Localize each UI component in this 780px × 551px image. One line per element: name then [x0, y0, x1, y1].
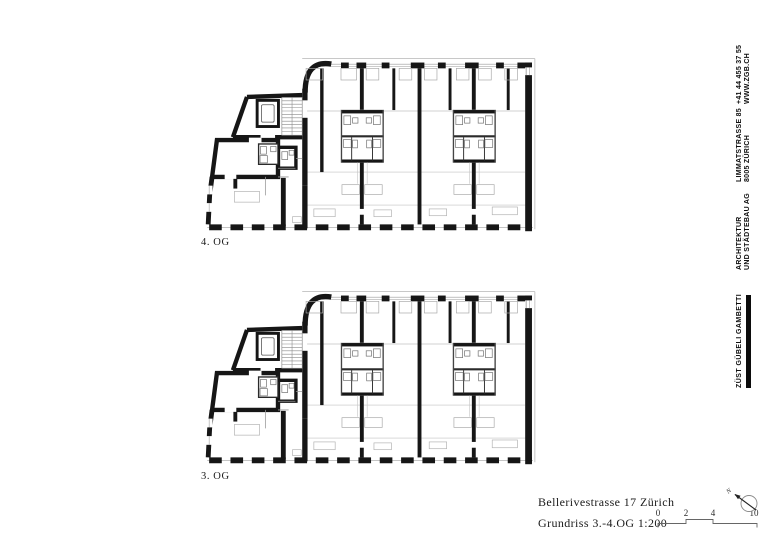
scale-tick-0: 0	[656, 508, 661, 518]
floor-plan-4og	[200, 48, 545, 238]
firm-logo: ZÜST GÜBELI GAMBETTI	[736, 293, 751, 388]
firm-phone: +41 44 455 37 55	[736, 24, 744, 104]
firm-address: LIMMATSTRASSE 85 8005 ZÜRICH	[736, 115, 753, 182]
firm-website: WWW.ZGB.CH	[744, 24, 752, 104]
scale-bar-line	[658, 520, 757, 528]
logo-underline	[746, 295, 751, 388]
firm-logo-name: ZÜST GÜBELI GAMBETTI	[736, 293, 744, 388]
plan-label-4og: 4. OG	[201, 237, 230, 248]
north-label: N	[724, 487, 733, 496]
firm-contact: +41 44 455 37 55 WWW.ZGB.CH	[736, 24, 753, 104]
firm-type: ARCHITEKTUR UND STÄDTEBAU AG	[736, 206, 753, 270]
scale-bar-and-north: 0 2 4 10 N	[650, 486, 780, 540]
firm-address-line2: 8005 ZÜRICH	[744, 115, 752, 182]
north-arrow-icon: N	[724, 487, 757, 512]
scale-tick-2: 2	[684, 508, 689, 518]
floor-plan-3og	[200, 281, 545, 471]
scale-bar: 0 2 4 10	[656, 508, 759, 528]
plan-label-3og: 3. OG	[201, 471, 230, 482]
firm-type-line2: UND STÄDTEBAU AG	[744, 206, 752, 270]
scale-tick-4: 4	[711, 508, 716, 518]
